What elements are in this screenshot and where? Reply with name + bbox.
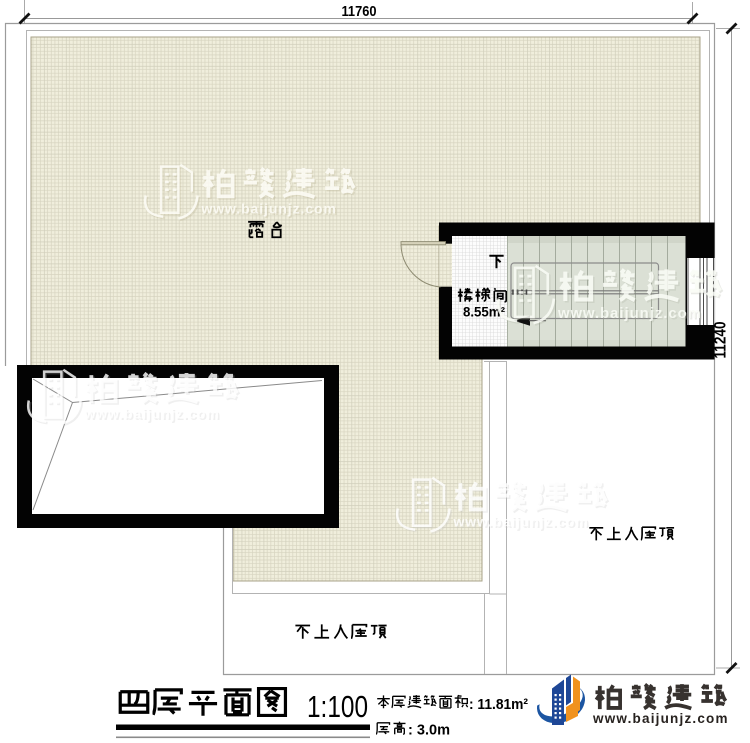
svg-text:: 11.81m²: : 11.81m² [469,696,528,713]
svg-text:: 3.0m: : 3.0m [408,722,450,739]
svg-text:11760: 11760 [342,3,377,20]
svg-text:www.baijunjz.com: www.baijunjz.com [592,711,729,726]
svg-text:11240: 11240 [711,322,730,359]
svg-text:1:100: 1:100 [307,689,368,724]
